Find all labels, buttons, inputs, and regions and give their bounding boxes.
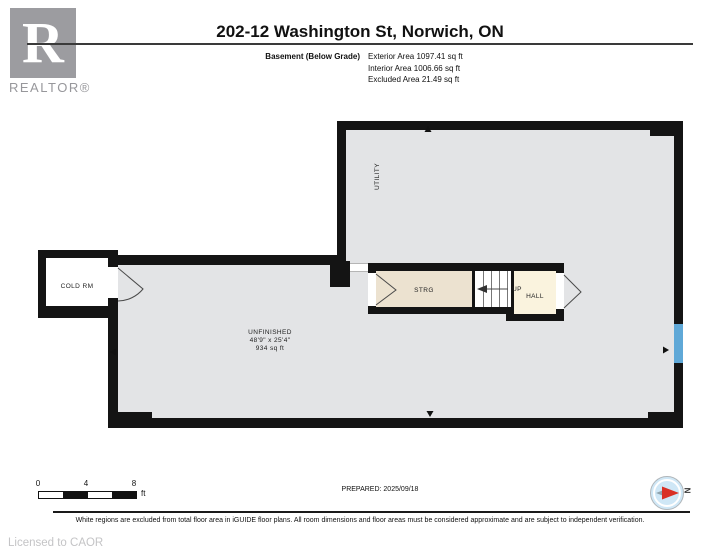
interior-area: Interior Area 1006.66 sq ft [368,63,463,75]
scale-bar-segment [112,492,136,498]
excluded-area: Excluded Area 21.49 sq ft [368,74,463,86]
stair-tread [483,271,484,307]
unfinished-area: 934 sq ft [200,345,340,353]
unfinished-dimensions: 48'9" x 25'4" [200,337,340,345]
scale-bar-segment [88,492,112,498]
wall-bottom [108,418,683,428]
compass-north-label: N [682,488,691,494]
stairs-up-label: UP [509,286,525,293]
disclaimer-text: White regions are excluded from total fl… [0,517,720,524]
stair-tread [499,271,500,307]
page-title: 202-12 Washington St, Norwich, ON [0,22,720,42]
scale-bar-segment [39,492,63,498]
wall-top-lower [108,255,346,265]
wall-step-bottom-right [648,412,674,418]
compass-icon [651,477,683,509]
header-divider [27,43,693,45]
window [674,324,683,363]
wall-opening [350,263,370,272]
stair-tread [507,271,508,307]
stairs-floor [475,271,511,307]
wall-left-upper [337,121,346,269]
scale-tick-4: 4 [81,479,91,488]
scale-bar [38,491,137,499]
unfinished-label: UNFINISHED 48'9" x 25'4" 934 sq ft [200,329,340,353]
floor-name-label: Basement (Below Grade) [150,52,360,61]
footer-divider [53,511,690,513]
stair-tread [491,271,492,307]
wall-top-upper [337,121,683,130]
unfinished-name: UNFINISHED [200,329,340,337]
floorplan-page: R REALTOR® 202-12 Washington St, Norwich… [0,0,720,556]
stairs-left-divider [472,271,475,307]
license-text: Licensed to CAOR [8,537,103,549]
strg-bottom-wall [368,307,514,314]
realtor-logo-label: REALTOR® [9,80,91,95]
scale-bar-segment [63,492,87,498]
strg-block-top-wall [368,263,564,271]
cold-room-label: COLD RM [46,283,108,290]
compass [650,476,684,510]
scale-tick-8: 8 [129,479,139,488]
utility-floor-area [346,130,674,270]
cold-room-door-gap [108,267,118,298]
wall-right [674,121,683,428]
scale-tick-0: 0 [33,479,43,488]
utility-label: UTILITY [374,163,381,190]
wall-step-bottom-left [118,412,152,418]
compass-north-arrow-icon [662,487,679,500]
hall-door-gap [556,273,564,309]
strg-door-gap [368,273,376,306]
wall-junction-block [330,261,350,287]
wall-step-top-right [650,130,674,136]
exterior-area: Exterior Area 1097.41 sq ft [368,51,463,63]
strg-label: STRG [376,287,472,294]
cold-room-floor [46,258,108,306]
area-summary: Exterior Area 1097.41 sq ft Interior Are… [368,51,463,86]
prepared-date: PREPARED: 2025/09/18 [290,486,470,493]
hall-label: HALL [520,293,550,300]
scale-unit-label: ft [141,489,145,498]
